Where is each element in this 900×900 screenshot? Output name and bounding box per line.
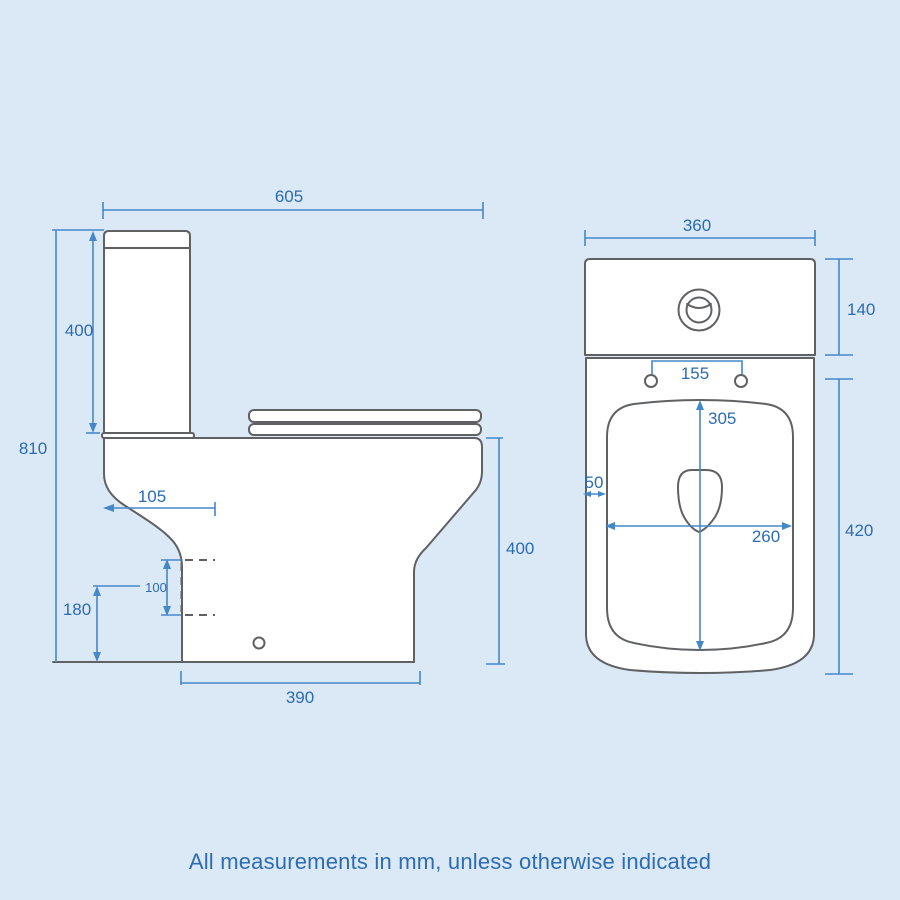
- dim-label-50: 50: [585, 473, 604, 492]
- dim-cistern-face-height: 140: [825, 259, 875, 355]
- dim-label-810: 810: [19, 439, 47, 458]
- dim-overall-depth: 605: [103, 187, 483, 219]
- dim-label-360: 360: [683, 216, 711, 235]
- measurement-note: All measurements in mm, unless otherwise…: [0, 849, 900, 875]
- dim-cistern-height: 400: [65, 231, 100, 433]
- dim-label-100: 100: [145, 580, 167, 595]
- dim-overall-height: 810: [19, 230, 104, 662]
- flush-button: [679, 290, 720, 331]
- seat-bolt-hole-right: [735, 375, 747, 387]
- toilet-seat-side: [249, 424, 481, 435]
- dim-label-390: 390: [286, 688, 314, 707]
- dim-label-180: 180: [63, 600, 91, 619]
- dim-label-400-cistern: 400: [65, 321, 93, 340]
- dim-label-155: 155: [681, 364, 709, 383]
- side-view-group: 605 400 810 105: [19, 187, 535, 707]
- pan-fixing-hole: [254, 638, 265, 649]
- dim-label-305: 305: [708, 409, 736, 428]
- dim-trap-height: 180: [63, 586, 140, 662]
- dim-label-140: 140: [847, 300, 875, 319]
- dim-trap-size: 100: [145, 559, 181, 616]
- front-view-group: 360 140 420 155 305: [583, 216, 875, 674]
- dim-label-420: 420: [845, 521, 873, 540]
- dim-label-105: 105: [138, 487, 166, 506]
- dim-overall-width: 360: [585, 216, 815, 246]
- seat-bolt-hole-left: [645, 375, 657, 387]
- dim-label-260: 260: [752, 527, 780, 546]
- pan-side-outline: [104, 438, 482, 662]
- dim-rim-offset: 50: [583, 473, 606, 497]
- toilet-lid-side: [249, 410, 481, 422]
- dim-label-400-pan: 400: [506, 539, 534, 558]
- dim-pan-height-front: 420: [825, 379, 873, 674]
- dim-label-605: 605: [275, 187, 303, 206]
- flush-button-inner: [687, 298, 712, 323]
- technical-drawing: 605 400 810 105: [0, 0, 900, 900]
- cistern-side-outline: [104, 231, 190, 433]
- dim-pan-height-side: 400: [486, 438, 534, 664]
- dim-base-depth: 390: [181, 671, 420, 707]
- toilet-dimension-diagram: 605 400 810 105: [0, 0, 900, 900]
